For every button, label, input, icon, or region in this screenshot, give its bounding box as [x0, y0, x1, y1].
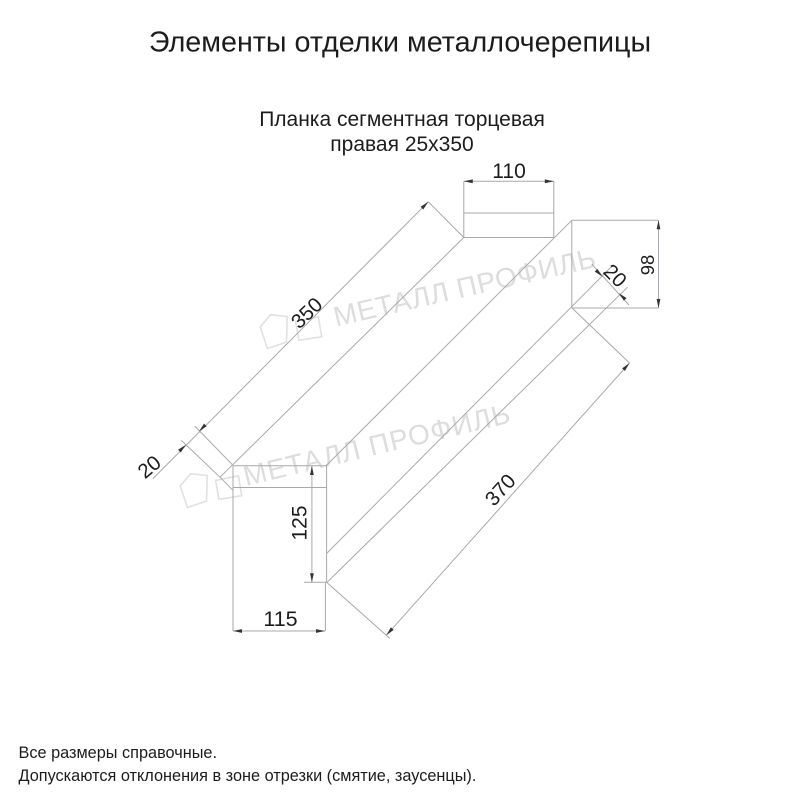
svg-text:98: 98 — [637, 255, 658, 276]
svg-text:Все размеры справочные.: Все размеры справочные. — [19, 744, 217, 762]
svg-text:110: 110 — [492, 160, 525, 183]
svg-text:115: 115 — [263, 607, 297, 631]
svg-text:Планка сегментная торцевая: Планка сегментная торцевая — [259, 108, 545, 131]
svg-text:Элементы отделки металлочерепи: Элементы отделки металлочерепицы — [149, 26, 651, 58]
svg-text:правая 25х350: правая 25х350 — [330, 133, 473, 156]
svg-text:125: 125 — [289, 505, 312, 540]
svg-text:Допускаются отклонения в зоне: Допускаются отклонения в зоне отрезки (с… — [19, 767, 477, 785]
